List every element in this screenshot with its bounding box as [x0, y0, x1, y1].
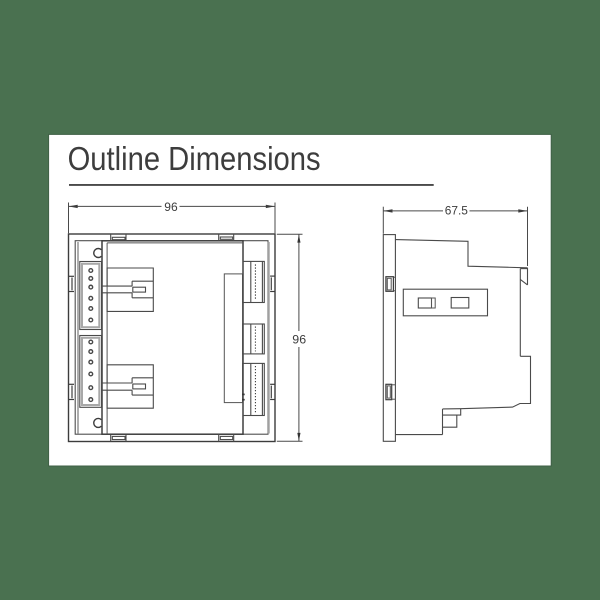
svg-text:96: 96: [292, 332, 306, 346]
svg-text:96: 96: [164, 200, 177, 214]
svg-text:67.5: 67.5: [445, 203, 468, 217]
svg-text:Outline Dimensions: Outline Dimensions: [68, 140, 321, 177]
